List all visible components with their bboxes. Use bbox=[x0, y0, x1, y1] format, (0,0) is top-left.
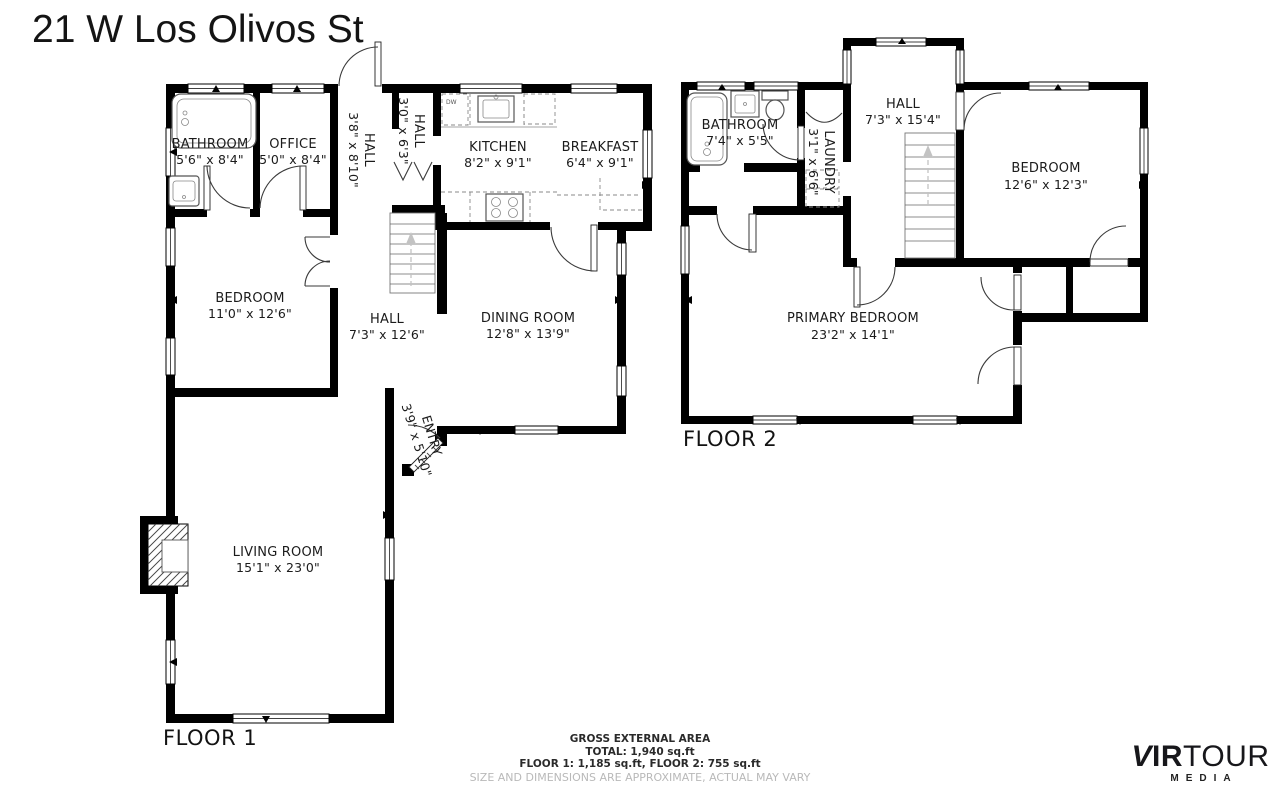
window bbox=[515, 426, 558, 434]
floorplan-canvas: DW bbox=[0, 0, 1280, 799]
room-dims-hall-2: 3'0" x 6'3" bbox=[396, 97, 411, 165]
footer-gross-area: GROSS EXTERNAL AREA bbox=[0, 733, 1280, 746]
sink-icon bbox=[169, 176, 199, 206]
room-dims-living: 15'1" x 23'0" bbox=[236, 560, 320, 575]
window bbox=[754, 82, 798, 90]
hall-primary-door bbox=[854, 267, 895, 307]
logo-tour: TOUR bbox=[1183, 740, 1269, 773]
window bbox=[166, 228, 175, 266]
laundry-door bbox=[806, 112, 842, 122]
virtour-media-logo: VIRTOUR MEDIA bbox=[1118, 742, 1280, 784]
footer-floor-areas: FLOOR 1: 1,185 sq.ft, FLOOR 2: 755 sq.ft bbox=[0, 758, 1280, 771]
window bbox=[643, 130, 652, 178]
window bbox=[956, 50, 964, 84]
window bbox=[913, 416, 957, 424]
logo-brand: VIRTOUR bbox=[1118, 742, 1280, 772]
room-label-dining: DINING ROOM bbox=[481, 311, 575, 326]
bedroom-door bbox=[956, 92, 1001, 130]
logo-ir: IR bbox=[1152, 740, 1183, 773]
office-door bbox=[260, 166, 306, 210]
room-dims-bathroom: 5'6" x 8'4" bbox=[176, 152, 244, 167]
window bbox=[1140, 128, 1148, 174]
room-dims-hall-f2: 7'3" x 15'4" bbox=[865, 112, 941, 127]
room-dims-kitchen: 8'2" x 9'1" bbox=[464, 155, 532, 170]
front-door bbox=[339, 42, 381, 86]
window bbox=[753, 416, 797, 424]
room-label-hall-f2: HALL bbox=[886, 97, 921, 112]
kitchen-sink-icon bbox=[478, 95, 514, 122]
floor2-label: FLOOR 2 bbox=[683, 427, 777, 451]
room-label-bedroom-f1: BEDROOM bbox=[215, 291, 284, 306]
room-label-hall-1: HALL bbox=[361, 133, 376, 168]
room-label-hall-3: HALL bbox=[370, 312, 405, 327]
fireplace-icon bbox=[148, 524, 188, 586]
room-dims-hall-3: 7'3" x 12'6" bbox=[349, 327, 425, 342]
bedroom-double-door bbox=[305, 237, 330, 286]
window bbox=[843, 50, 851, 84]
logo-v: V bbox=[1132, 740, 1153, 773]
stairs-icon bbox=[905, 133, 955, 258]
bathroom-door bbox=[204, 166, 250, 210]
stairs-icon bbox=[390, 213, 435, 293]
window bbox=[617, 366, 626, 396]
kitchen-dining-door bbox=[551, 225, 597, 271]
floor2-room-labels: BATHROOM 7'4" x 5'5" LAUNDRY 3'1" x 6'6"… bbox=[702, 97, 1088, 342]
floor1-room-labels: BATHROOM 5'6" x 8'4" OFFICE 5'0" x 8'4" … bbox=[172, 97, 639, 575]
floor1-walls bbox=[140, 84, 652, 723]
room-dims-bedroom-f1: 11'0" x 12'6" bbox=[208, 306, 292, 321]
window bbox=[617, 243, 626, 275]
room-label-bedroom-f2: BEDROOM bbox=[1011, 161, 1080, 176]
room-dims-bathroom-f2: 7'4" x 5'5" bbox=[706, 133, 774, 148]
window bbox=[460, 84, 522, 93]
footer-disclaimer: SIZE AND DIMENSIONS ARE APPROXIMATE, ACT… bbox=[0, 771, 1280, 784]
closet-door bbox=[981, 275, 1021, 310]
room-dims-dining: 12'8" x 13'9" bbox=[486, 326, 570, 341]
room-dims-bedroom-f2: 12'6" x 12'3" bbox=[1004, 177, 1088, 192]
window bbox=[571, 84, 617, 93]
balcony-door bbox=[978, 347, 1021, 385]
window bbox=[681, 226, 689, 274]
window bbox=[166, 338, 175, 375]
breakfast-bench bbox=[600, 178, 645, 210]
floor1-plan: DW bbox=[140, 42, 652, 750]
room-label-office: OFFICE bbox=[269, 137, 317, 152]
room-label-primary-bedroom: PRIMARY BEDROOM bbox=[787, 311, 919, 326]
dishwasher-label: DW bbox=[446, 99, 457, 106]
window bbox=[233, 714, 329, 723]
footer-total: TOTAL: 1,940 sq.ft bbox=[0, 746, 1280, 759]
room-label-hall-2: HALL bbox=[411, 114, 426, 149]
stove-icon bbox=[486, 194, 523, 221]
room-dims-primary-bedroom: 23'2" x 14'1" bbox=[811, 327, 895, 342]
sink-icon bbox=[731, 91, 759, 117]
floor2-plan: BATHROOM 7'4" x 5'5" LAUNDRY 3'1" x 6'6"… bbox=[681, 38, 1148, 451]
room-label-bathroom-f2: BATHROOM bbox=[702, 118, 779, 133]
room-label-bathroom: BATHROOM bbox=[172, 137, 249, 152]
room-dims-laundry: 3'1" x 6'6" bbox=[806, 128, 821, 196]
room-dims-breakfast: 6'4" x 9'1" bbox=[566, 155, 634, 170]
room-label-living: LIVING ROOM bbox=[233, 545, 324, 560]
room-label-laundry: LAUNDRY bbox=[821, 130, 836, 193]
footer: GROSS EXTERNAL AREA TOTAL: 1,940 sq.ft F… bbox=[0, 733, 1280, 784]
room-label-breakfast: BREAKFAST bbox=[562, 140, 639, 155]
room-dims-hall-1: 3'8" x 8'10" bbox=[346, 112, 361, 188]
primary-entry-door bbox=[717, 214, 756, 252]
logo-media: MEDIA bbox=[1118, 773, 1280, 784]
bedroom-closet-door bbox=[1090, 226, 1128, 266]
window bbox=[385, 538, 394, 580]
room-dims-office: 5'0" x 8'4" bbox=[259, 152, 327, 167]
room-label-kitchen: KITCHEN bbox=[469, 140, 527, 155]
toilet-icon bbox=[762, 91, 788, 120]
